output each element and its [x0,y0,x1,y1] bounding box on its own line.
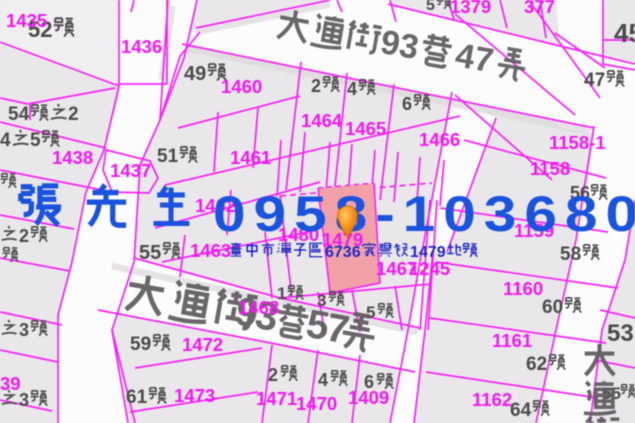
svg-text:1463: 1463 [190,240,231,261]
svg-text:54: 54 [8,104,30,125]
svg-text:58: 58 [560,244,581,265]
svg-text:1473: 1473 [174,385,215,406]
svg-text:1436: 1436 [121,36,162,57]
svg-text:1437: 1437 [110,160,151,181]
svg-text:5: 5 [366,303,375,322]
svg-text:5: 5 [30,130,41,151]
svg-text:61: 61 [126,387,148,408]
svg-text:1479: 1479 [410,244,446,261]
svg-text:1472: 1472 [182,334,223,355]
svg-text:1158: 1158 [530,158,570,179]
svg-text:2: 2 [68,104,79,125]
svg-text:1161: 1161 [492,330,532,351]
svg-text:55: 55 [139,242,161,264]
svg-text:6: 6 [402,94,412,114]
svg-text:1465: 1465 [345,118,386,139]
svg-text:1245: 1245 [409,258,450,279]
svg-text:49: 49 [184,63,206,85]
svg-text:47: 47 [453,36,497,80]
svg-text:60: 60 [542,297,563,318]
svg-text:62: 62 [526,354,547,375]
svg-text:377: 377 [524,0,555,17]
svg-text:1460: 1460 [221,76,262,97]
svg-text:4: 4 [0,130,11,151]
svg-text:1162: 1162 [472,389,512,410]
svg-text:0958-103680: 0958-103680 [213,186,635,242]
svg-text:1464: 1464 [301,110,343,131]
svg-text:93: 93 [378,23,422,67]
svg-text:1379: 1379 [450,0,491,17]
svg-text:45: 45 [614,18,635,48]
svg-text:57: 57 [303,302,351,352]
svg-text:1158-1: 1158-1 [549,132,606,153]
svg-text:47: 47 [584,70,605,91]
svg-text:53: 53 [607,320,634,347]
svg-text:1160: 1160 [503,278,543,299]
svg-text:51: 51 [157,146,179,167]
svg-text:3: 3 [19,320,29,340]
svg-text:1470: 1470 [296,393,337,414]
svg-text:39: 39 [0,373,21,394]
svg-text:64: 64 [510,400,532,421]
svg-text:1466: 1466 [419,129,460,150]
svg-text:1409: 1409 [348,387,389,408]
svg-text:2: 2 [311,76,321,96]
svg-text:1468: 1468 [238,297,279,318]
svg-text:59: 59 [130,334,151,355]
svg-text:4: 4 [347,79,357,99]
svg-text:1438: 1438 [52,147,93,168]
svg-text:6736: 6736 [325,244,361,261]
svg-text:2: 2 [19,226,29,246]
svg-text:1461: 1461 [230,147,271,168]
svg-text:2: 2 [268,365,278,385]
svg-text:1471: 1471 [256,388,297,409]
svg-text:4: 4 [318,370,328,390]
svg-text:5: 5 [426,0,435,14]
svg-text:1435: 1435 [6,10,47,31]
